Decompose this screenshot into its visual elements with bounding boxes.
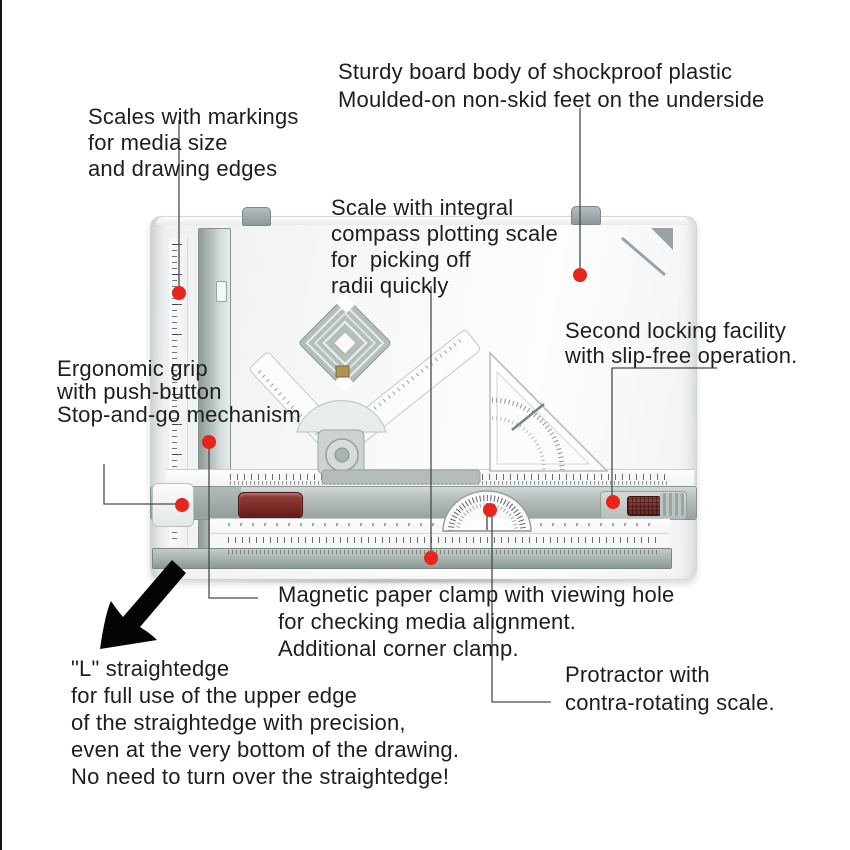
marker-dot-locking [606,495,620,509]
callout-line: Scales with markings [88,104,299,130]
callout-line: of the straightedge with precision, [71,709,459,736]
callout-line: radii quickly [331,273,558,299]
callout-integral: Scale with integral compass plotting sca… [331,195,558,299]
diamond-template [296,294,395,393]
corner-pen-slot [622,238,665,275]
callout-line: Scale with integral [331,195,558,221]
callout-line: and drawing edges [88,156,299,182]
callout-sturdy: Sturdy board body of shockproof plastic … [338,58,764,114]
leader-locking [612,368,717,501]
callout-ergonomic: Ergonomic grip with push-button Stop-and… [57,357,301,426]
set-square-triangle [490,353,607,471]
marker-dot-scales [172,286,186,300]
callout-line: Sturdy board body of shockproof plastic [338,58,764,86]
callout-line: compass plotting scale [331,221,558,247]
callout-scales: Scales with markings for media size and … [88,104,299,182]
marker-dot-clamp [202,435,216,449]
callout-straightedge: "L" straightedge for full use of the upp… [71,655,459,790]
callout-line: for picking off [331,247,558,273]
callout-magnetic: Magnetic paper clamp with viewing hole f… [278,581,674,662]
callout-line: for media size [88,130,299,156]
leader-magnetic [209,444,258,598]
callout-line: "L" straightedge [71,655,459,682]
marker-dot-grip [175,498,189,512]
marker-dot-sturdy [573,268,587,282]
callout-line: contra-rotating scale. [565,689,775,717]
marker-dot-protractor [483,503,497,517]
callout-line: Magnetic paper clamp with viewing hole [278,581,674,608]
callout-line: with push-button [57,380,301,403]
leader-ergonomic [104,464,178,504]
marker-dot-integral [424,551,438,565]
callout-line: Ergonomic grip [57,357,301,380]
direction-arrow [100,560,186,649]
corner-clamp [651,228,673,250]
product-diagram-page: { "figure": { "type": "annotated-product… [0,0,850,850]
callout-line: Moulded-on non-skid feet on the undersid… [338,86,764,114]
callout-line: for full use of the upper edge [71,682,459,709]
callout-line: Stop-and-go mechanism [57,403,301,426]
callout-line: Protractor with [565,661,775,689]
diamond-template-gold-chip [336,366,349,377]
callout-protractor: Protractor with contra-rotating scale. [565,661,775,717]
callout-line: Second locking facility [565,318,797,343]
callout-locking: Second locking facility with slip-free o… [565,318,797,368]
callout-line: No need to turn over the straightedge! [71,763,459,790]
callout-line: even at the very bottom of the drawing. [71,736,459,763]
callout-line: for checking media alignment. [278,608,674,635]
callout-line: with slip-free operation. [565,343,797,368]
